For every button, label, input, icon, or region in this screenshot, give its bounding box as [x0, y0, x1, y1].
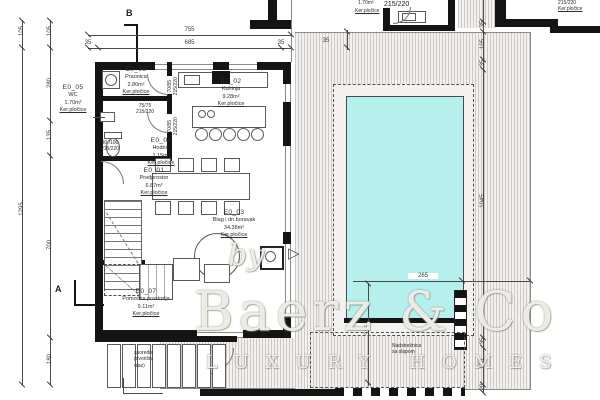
chair	[224, 158, 240, 172]
dim-pool-w: 265	[408, 273, 438, 279]
stool-1	[195, 128, 208, 141]
stool-2	[209, 128, 222, 141]
room-name: Predprostor	[128, 175, 180, 182]
dim-line-top-segments	[88, 48, 291, 49]
room-floor: Ker.pločice	[138, 160, 184, 167]
floor-plan: ▷ E0_05 WC 1.70m² Ker.pločice E0_06 Prao…	[0, 0, 600, 400]
room-label-e0-06: E0_06 Praonica 2.80m² Ker.pločice	[108, 66, 164, 96]
room-id: E0_06	[108, 66, 164, 74]
chair	[201, 158, 217, 172]
window-east-1	[285, 84, 291, 102]
room-area: 2.80m²	[108, 82, 164, 89]
dim-left-outer-2: 1295	[19, 195, 25, 223]
partition-laundry-wc	[100, 96, 167, 101]
wall-east-1	[283, 62, 291, 84]
dim-left-5: 180	[47, 349, 53, 369]
room-area: 1.15m²	[138, 153, 184, 160]
section-line-a-v	[74, 280, 76, 306]
room-id: E0_02	[202, 78, 260, 86]
label-leader-line	[93, 117, 105, 118]
window-north-2	[229, 64, 257, 70]
stool-5	[251, 128, 264, 141]
boundary-wall-top-right	[550, 26, 600, 33]
burner-2	[207, 110, 215, 118]
room-floor: Ker.pločice	[108, 89, 164, 96]
corner-floor: Ker.pločice	[558, 6, 600, 12]
room-name: Praonica	[108, 74, 164, 81]
door-spec-1: 70/85215/220	[167, 69, 180, 103]
room-floor: Ker.pločice	[50, 107, 96, 114]
wall-north-2	[213, 62, 229, 70]
room-label-e0-01: E0_01 Predprostor 6.87m² Ker.pločice	[128, 167, 180, 197]
door-spec-4: 90 /100215/220	[92, 140, 128, 153]
section-marker-b: B	[126, 8, 133, 18]
room-area: 9.28m²	[202, 94, 260, 101]
outdoor-wc-floor: Ker.pločice	[355, 8, 385, 14]
room-name: Blag i dn.boravak	[202, 217, 266, 224]
entrance-path-line-h	[123, 393, 163, 394]
room-area: 6.87m²	[128, 183, 180, 190]
outdoor-wc-area: 1.70m²	[358, 0, 384, 6]
chair	[178, 201, 194, 215]
wall-east-2	[283, 102, 291, 146]
dim-deck-gap: 35	[316, 38, 336, 44]
room-label-e0-05: E0_05 WC 1.70m² Ker.pločice	[50, 84, 96, 114]
entrance-path-line-v	[123, 378, 124, 394]
lower-retaining-wall	[200, 389, 336, 396]
watermark-by: by	[228, 238, 264, 273]
door-arc-hall	[101, 161, 124, 184]
dim-line-top-overall	[88, 35, 291, 36]
section-line-a-h	[74, 304, 104, 306]
dim-left-4: 700	[47, 235, 53, 255]
watermark-tagline: LUXURY HOMES	[182, 352, 592, 373]
watermark-brand: Baerz & Co	[152, 280, 600, 343]
room-name: Kuhinja	[202, 86, 260, 93]
kitchen-sink	[184, 75, 200, 85]
wall-west	[95, 62, 103, 338]
room-label-e0-02: E0_02 Kuhinja 9.28m² Ker.pločice	[202, 78, 260, 108]
lower-wall-section	[335, 388, 465, 396]
dim-left-3: 135	[47, 125, 53, 145]
room-floor: Ker.pločice	[202, 101, 260, 108]
room-label-e0-03: E0_03 Blag i dn.boravak 34.38m² Ker.ploč…	[202, 209, 266, 239]
deck-hatch-top-right	[458, 0, 495, 28]
dim-top-overall: 755	[88, 27, 291, 33]
upper-wing-line	[291, 0, 292, 62]
outdoor-wc-wall-bottom	[383, 25, 455, 31]
section-marker-a: A	[55, 284, 62, 294]
room-name: WC	[50, 92, 96, 99]
stool-3	[223, 128, 236, 141]
door-swing-symbol: ▷	[288, 244, 304, 264]
slat	[107, 344, 121, 388]
fireplace-flue	[265, 251, 276, 262]
dim-top-middle: 685	[98, 40, 281, 46]
upper-wing-wall-v	[268, 0, 277, 22]
stool-4	[237, 128, 250, 141]
room-name: Hodnik	[138, 145, 184, 152]
door-spec-3: 75/75215/220	[128, 103, 162, 116]
room-floor: Ker.pločice	[128, 190, 180, 197]
door-spec-2: 70/85215/220	[167, 109, 180, 143]
room-area: 1.70m²	[50, 100, 96, 107]
glass-door-east-1	[285, 146, 291, 232]
corner-room-label: 215/220 Ker.pločice	[558, 0, 600, 13]
burner-1	[198, 110, 206, 118]
room-id: E0_01	[128, 167, 180, 175]
wall-east-3	[283, 232, 291, 244]
dim-left-2: 280	[47, 73, 53, 93]
room-id: E0_05	[50, 84, 96, 92]
outdoor-wc-door-spec: 215/220	[384, 1, 420, 8]
room-id: E0_03	[202, 209, 266, 217]
side-entrance-note: sporedni(dvorišniulaz)	[134, 350, 180, 369]
dim-right-4: 1045	[480, 187, 486, 215]
chair	[155, 201, 171, 215]
corner-structure-wall-h	[495, 19, 558, 27]
room-area: 34.38m²	[202, 225, 266, 232]
armchair-1	[173, 258, 200, 281]
outdoor-wc-wall-right	[448, 0, 455, 31]
